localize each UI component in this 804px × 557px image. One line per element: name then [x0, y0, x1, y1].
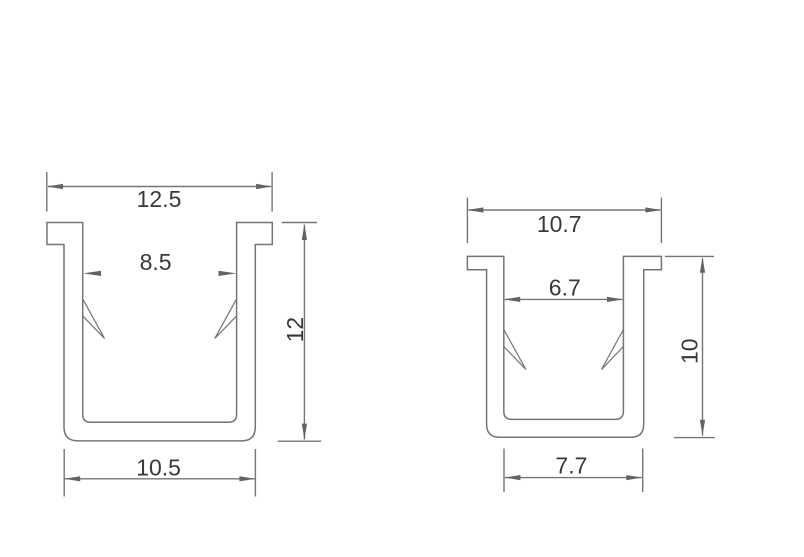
svg-text:12: 12 [282, 317, 308, 343]
svg-text:7.7: 7.7 [555, 453, 587, 479]
svg-text:8.5: 8.5 [140, 249, 172, 275]
svg-text:10: 10 [676, 338, 702, 364]
svg-text:12.5: 12.5 [137, 186, 182, 212]
svg-text:10.7: 10.7 [537, 211, 582, 237]
svg-text:10.5: 10.5 [136, 454, 181, 480]
svg-text:6.7: 6.7 [549, 275, 581, 301]
